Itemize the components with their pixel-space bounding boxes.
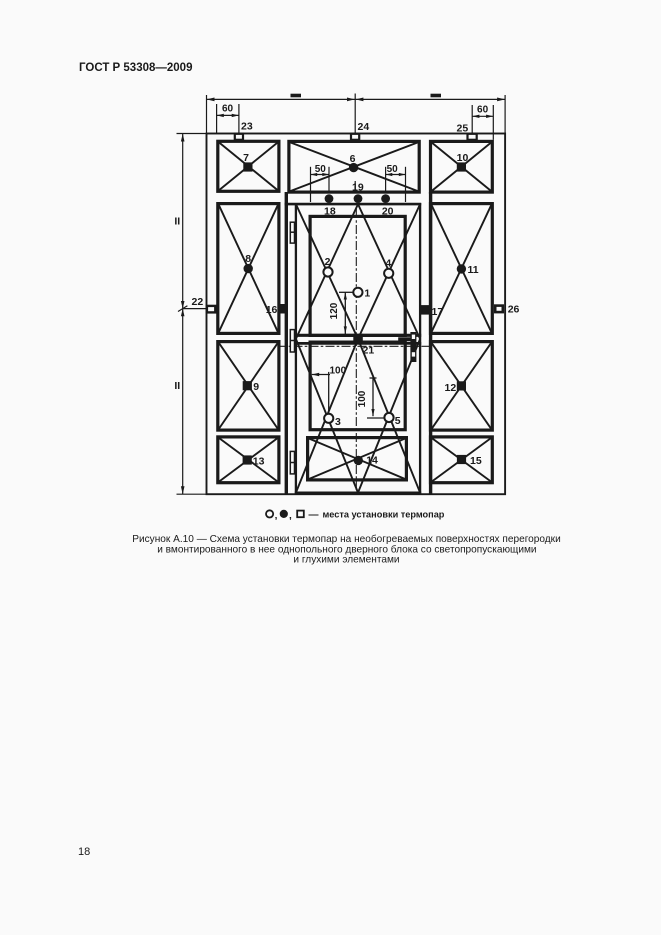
svg-text:19: 19 (352, 182, 364, 194)
svg-text:4: 4 (385, 258, 391, 270)
svg-text:24: 24 (358, 121, 370, 133)
svg-text:6: 6 (350, 153, 356, 165)
svg-text:10: 10 (457, 152, 469, 164)
svg-text:12: 12 (445, 382, 457, 394)
svg-text:60: 60 (222, 104, 234, 115)
svg-text:—: — (309, 510, 319, 521)
svg-text:26: 26 (508, 304, 520, 316)
svg-text:II: II (174, 215, 180, 227)
svg-text:2: 2 (325, 256, 331, 268)
svg-text:18: 18 (324, 206, 336, 218)
svg-text:16: 16 (266, 304, 278, 316)
svg-text:9: 9 (253, 381, 259, 393)
svg-text:14: 14 (366, 454, 378, 466)
svg-text:50: 50 (387, 164, 399, 175)
svg-text:120: 120 (329, 302, 340, 319)
svg-text:Рисунок А.10 — Схема установки: Рисунок А.10 — Схема установки термопар … (132, 533, 560, 545)
svg-text:60: 60 (477, 104, 489, 115)
svg-text:8: 8 (245, 253, 251, 265)
svg-text:II: II (174, 380, 180, 392)
svg-text:11: 11 (468, 264, 479, 276)
svg-text:13: 13 (253, 456, 265, 468)
svg-text:23: 23 (241, 121, 253, 133)
svg-text:22: 22 (192, 296, 204, 308)
svg-text:3: 3 (335, 416, 341, 428)
svg-text:1: 1 (364, 287, 370, 299)
svg-text:7: 7 (243, 152, 249, 164)
svg-text:,: , (289, 511, 292, 522)
svg-text:и глухими элементами: и глухими элементами (293, 555, 399, 566)
svg-text:50: 50 (315, 164, 327, 175)
svg-text:места установки термопар: места установки термопар (323, 510, 445, 520)
svg-text:20: 20 (382, 206, 394, 218)
svg-text:17: 17 (432, 306, 444, 318)
svg-text:ГОСТ Р 53308—2009: ГОСТ Р 53308—2009 (79, 62, 192, 74)
svg-text:,: , (275, 511, 278, 522)
svg-text:100: 100 (329, 366, 346, 377)
svg-text:5: 5 (395, 415, 401, 427)
svg-text:25: 25 (457, 122, 469, 134)
svg-text:15: 15 (470, 455, 482, 467)
svg-text:100: 100 (357, 390, 368, 407)
svg-text:21: 21 (363, 344, 375, 356)
svg-text:18: 18 (78, 846, 90, 858)
